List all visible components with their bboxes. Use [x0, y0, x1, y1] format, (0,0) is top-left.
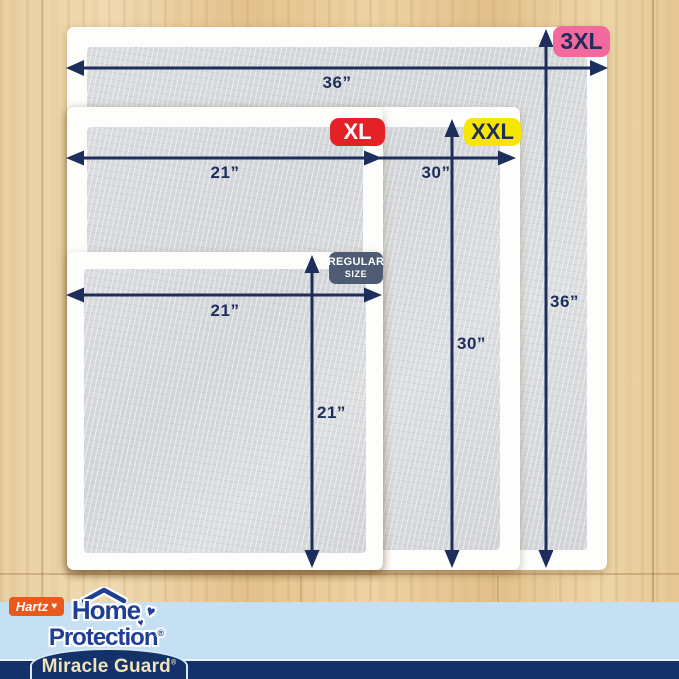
miracle-guard-text: Miracle Guard — [42, 656, 171, 677]
badge-regular-line2: SIZE — [345, 270, 367, 279]
wood-plank-seam — [652, 0, 654, 602]
miracle-guard-banner: Miracle Guard® — [30, 648, 188, 679]
badge-regular-line1: REGULAR — [328, 257, 385, 268]
badge-xxl: XXL — [464, 118, 521, 146]
registered-mark: ® — [158, 628, 164, 638]
heart-icon: ♥ — [142, 599, 157, 624]
product-size-diagram: 36” 21” 30” 21” 21” 30” 36” 3XL XL XXL R… — [0, 0, 679, 679]
home-protection-line2: Protection® — [30, 622, 182, 649]
label-xxl-height: 30” — [457, 334, 486, 354]
wood-plank-seam — [497, 575, 499, 602]
wood-plank-seam — [41, 0, 43, 602]
label-xxl-width: 30” — [406, 163, 466, 183]
label-3xl-height: 36” — [550, 292, 579, 312]
label-xl-width: 21” — [195, 163, 255, 183]
wood-plank-seam — [0, 573, 679, 575]
label-regular-height: 21” — [317, 403, 346, 423]
badge-xl: XL — [330, 118, 385, 146]
registered-mark: ® — [171, 660, 176, 667]
wood-plank-seam — [300, 575, 302, 602]
label-3xl-width: 36” — [307, 73, 367, 93]
home-protection-line1: Home ♥ ♥ — [30, 598, 182, 622]
badge-3xl: 3XL — [553, 26, 610, 57]
label-regular-width: 21” — [195, 301, 255, 321]
home-protection-logo: Home ♥ ♥ Protection® — [30, 590, 182, 649]
badge-regular-size: REGULAR SIZE — [329, 252, 383, 284]
